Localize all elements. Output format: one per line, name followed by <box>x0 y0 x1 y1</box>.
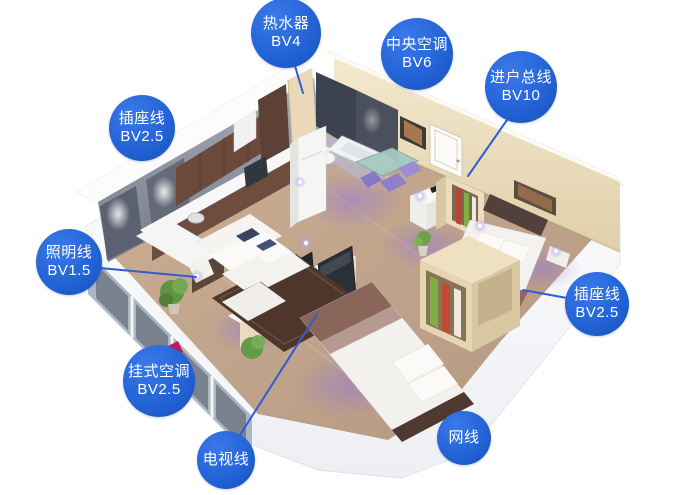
callout-network-line: 网线 <box>437 411 491 465</box>
callout-text: 网线 <box>448 429 479 447</box>
callout-text: 中央空调 <box>386 36 448 54</box>
callout-text: BV10 <box>502 87 541 105</box>
callout-text: 插座线 <box>574 286 621 304</box>
callout-socket-line-left: 插座线BV2.5 <box>109 95 175 161</box>
callout-text: BV2.5 <box>137 381 180 399</box>
callout-text: BV2.5 <box>575 304 618 322</box>
callout-text: BV1.5 <box>47 262 90 280</box>
callout-lighting-line: 照明线BV1.5 <box>36 229 102 295</box>
callout-central-ac: 中央空调BV6 <box>381 18 453 90</box>
callout-text: 照明线 <box>46 244 93 262</box>
callout-text: BV4 <box>271 33 301 51</box>
callout-text: BV2.5 <box>120 128 163 146</box>
callout-text: 进户总线 <box>490 69 552 87</box>
callout-text: 插座线 <box>119 110 166 128</box>
callout-tv-line: 电视线 <box>197 431 255 489</box>
callout-layer: 热水器BV4中央空调BV6进户总线BV10插座线BV2.5照明线BV1.5挂式空… <box>0 0 688 495</box>
wiring-diagram: 热水器BV4中央空调BV6进户总线BV10插座线BV2.5照明线BV1.5挂式空… <box>0 0 688 495</box>
callout-socket-line-right: 插座线BV2.5 <box>565 272 629 336</box>
callout-wall-ac: 挂式空调BV2.5 <box>123 345 195 417</box>
callout-text: BV6 <box>402 54 432 72</box>
callout-text: 热水器 <box>263 15 310 33</box>
callout-text: 挂式空调 <box>128 363 190 381</box>
callout-text: 电视线 <box>203 451 250 469</box>
callout-water-heater: 热水器BV4 <box>251 0 321 68</box>
callout-incoming-main: 进户总线BV10 <box>485 51 557 123</box>
